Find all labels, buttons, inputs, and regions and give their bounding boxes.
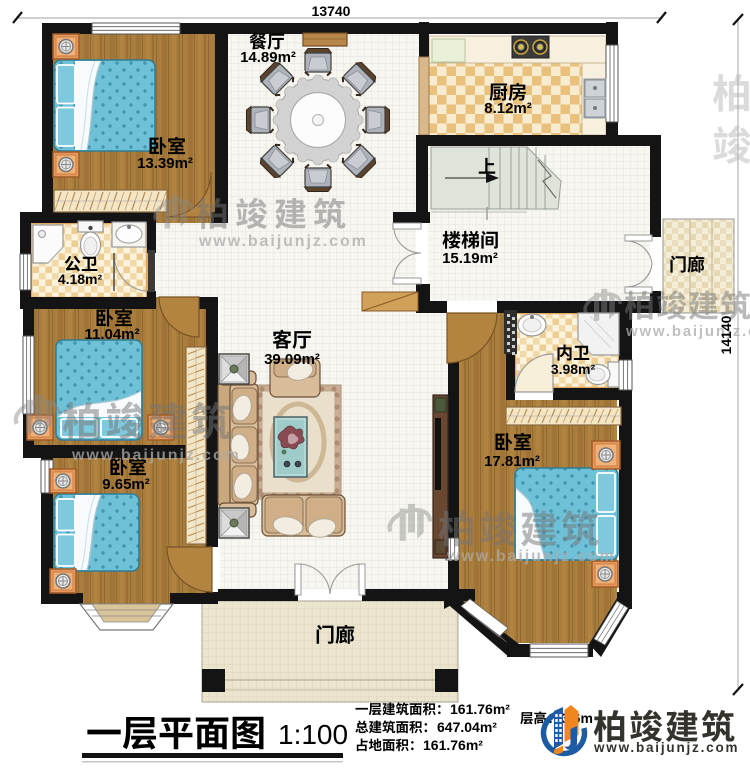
svg-text:161.76m²: 161.76m² (423, 737, 483, 753)
svg-text:14.89m²: 14.89m² (240, 49, 296, 66)
svg-text:39.09m²: 39.09m² (264, 351, 320, 368)
svg-text:14140: 14140 (718, 315, 734, 354)
svg-text:13.39m²: 13.39m² (137, 155, 193, 172)
svg-text:3.98m²: 3.98m² (551, 361, 596, 377)
svg-text:4.18m²: 4.18m² (58, 271, 103, 287)
svg-text:17.81m²: 17.81m² (484, 453, 540, 470)
svg-text:9.65m²: 9.65m² (102, 476, 150, 493)
svg-text:11.04m²: 11.04m² (84, 326, 139, 343)
svg-text:13740: 13740 (312, 3, 351, 19)
svg-text:www.baijunjz.com: www.baijunjz.com (198, 233, 368, 250)
svg-text:647.04m²: 647.04m² (437, 719, 497, 735)
svg-text:8.12m²: 8.12m² (484, 100, 532, 117)
svg-text:www.baijunjz.com: www.baijunjz.com (71, 447, 241, 464)
svg-text:1:100: 1:100 (278, 719, 348, 750)
svg-text:15.19m²: 15.19m² (442, 250, 498, 267)
svg-text:www.baijunjz.com: www.baijunjz.com (593, 740, 739, 755)
svg-text:161.76m²: 161.76m² (450, 701, 510, 717)
svg-text:www.baijunjz.com: www.baijunjz.com (446, 548, 616, 565)
